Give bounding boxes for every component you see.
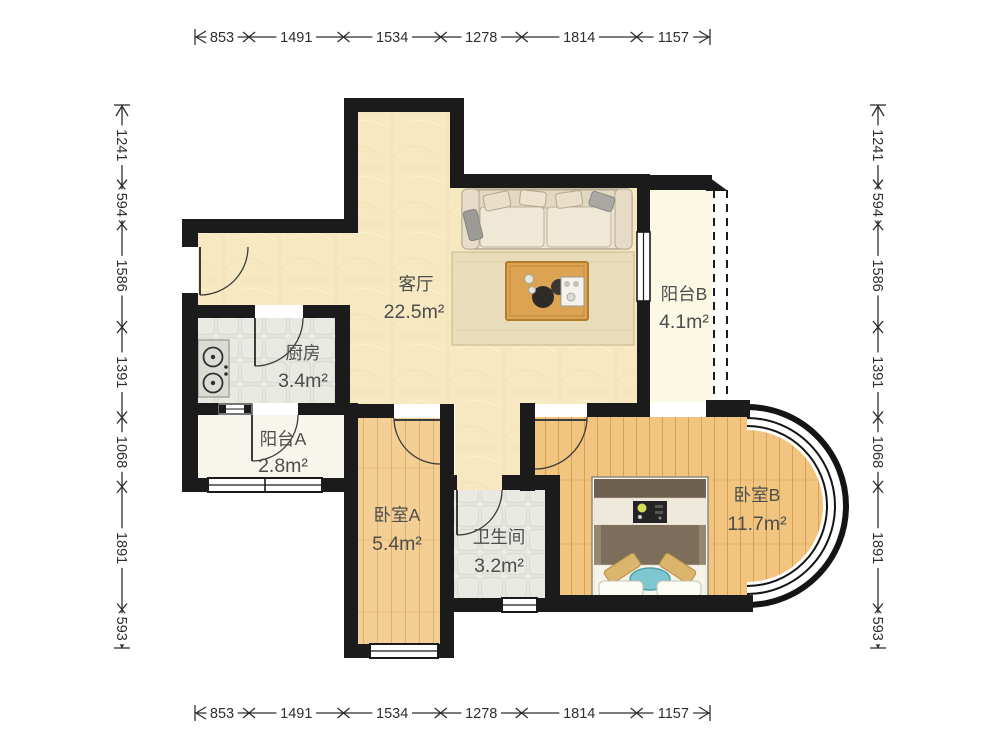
dimension-value: 1534 (376, 30, 408, 46)
dimension-value: 1068 (113, 436, 129, 468)
dimension-value: 1586 (113, 259, 129, 291)
stove (198, 340, 229, 397)
balcony-b-label: 阳台B (661, 284, 708, 304)
dimension-value: 1278 (465, 30, 497, 46)
bathroom-label: 卫生间 (473, 527, 526, 547)
living-balcony-b-window (637, 232, 650, 301)
dimension-value: 1391 (869, 356, 885, 388)
dimension-value: 1891 (113, 532, 129, 564)
dimension-strip-right: 12415941586139110681891593 (869, 105, 886, 648)
entry-hall-floor (198, 233, 350, 305)
living-room-floor (358, 112, 450, 192)
dimension-value: 1278 (465, 706, 497, 722)
kitchen-sliding-door (218, 404, 252, 414)
bedroom-a-label: 卧室A (374, 505, 421, 525)
tray (561, 277, 584, 306)
dimension-value: 593 (113, 617, 129, 641)
dimension-value: 1157 (658, 30, 689, 46)
living-room-area: 22.5m² (384, 301, 445, 323)
bedroom-b-floor (535, 417, 747, 478)
floor-plan-svg: 客厅 22.5m² 阳台B 4.1m² 厨房 3.4m² 阳台A 2.8m² 卧… (0, 0, 1000, 750)
dimension-value: 1157 (658, 706, 689, 722)
balcony-b-area: 4.1m² (659, 311, 709, 333)
dimension-strip-left: 12415941586139110681891593 (113, 105, 130, 648)
dimension-strip-bottom: 85314911534127818141157 (195, 705, 710, 722)
bathroom-area: 3.2m² (474, 555, 524, 577)
dimension-strip-top: 85314911534127818141157 (195, 29, 710, 46)
dimension-value: 1534 (376, 706, 408, 722)
dimension-value: 1891 (869, 532, 885, 564)
dimension-value: 594 (869, 193, 885, 217)
dimension-value: 594 (113, 193, 129, 217)
coffee-table (506, 262, 588, 320)
dimension-value: 1491 (280, 30, 312, 46)
dimension-value: 1491 (280, 706, 312, 722)
dimension-value: 1241 (113, 129, 129, 161)
bedroom-a-area: 5.4m² (372, 533, 422, 555)
bedroom-b-label: 卧室B (734, 485, 781, 505)
dimension-value: 1391 (113, 356, 129, 388)
dimension-value: 1814 (563, 706, 595, 722)
balcony-a-label: 阳台A (260, 429, 307, 449)
kitchen-area: 3.4m² (278, 370, 328, 392)
living-room-label: 客厅 (399, 274, 434, 294)
sofa (462, 189, 632, 249)
kitchen-label: 厨房 (286, 343, 321, 363)
bedroom-a-floor (358, 418, 440, 644)
dimension-value: 853 (210, 706, 234, 722)
bedroom-a-window (370, 644, 438, 658)
dimension-value: 1068 (869, 436, 885, 468)
bathroom-window (502, 598, 537, 612)
dimension-value: 1241 (869, 129, 885, 161)
dimension-value: 853 (210, 30, 234, 46)
balcony-a-window (208, 478, 322, 492)
bedroom-b-area: 11.7m² (727, 513, 787, 535)
bay-window (747, 404, 849, 608)
balcony-b-open-boundary (714, 190, 727, 402)
balcony-a-area: 2.8m² (258, 455, 308, 477)
dimension-value: 593 (869, 617, 885, 641)
floor-plan-page: 客厅 22.5m² 阳台B 4.1m² 厨房 3.4m² 阳台A 2.8m² 卧… (0, 0, 1000, 750)
dimension-value: 1586 (869, 259, 885, 291)
dimension-value: 1814 (563, 30, 595, 46)
double-bed (592, 477, 708, 599)
